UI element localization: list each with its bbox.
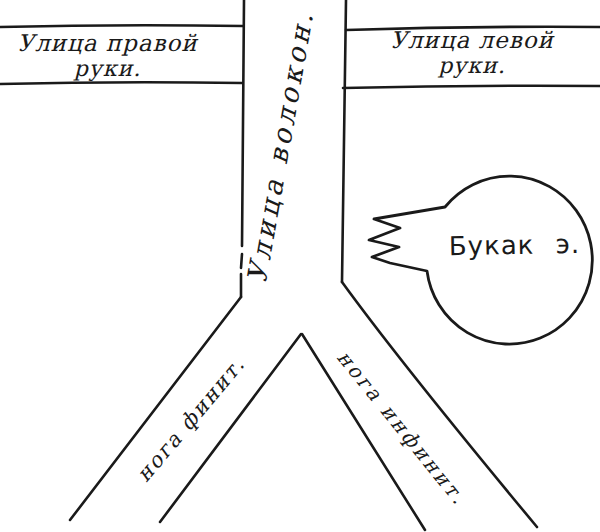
street-label-top-right-line1: Улица левой [372,28,572,52]
street-line-vertical-left [241,0,244,297]
street-label-top-left: Улица правой руки. [5,31,210,80]
street-label-top-right-line2: руки. [372,54,572,77]
street-label-top-right: Улица левой руки. [372,28,572,77]
speech-bubble-text: Букак э. [447,229,583,261]
hand-drawn-street-map: Улица правой руки. Улица левой руки. Ули… [0,0,600,532]
street-line-top-left-upper [0,25,243,27]
street-line-top-left-lower [0,82,242,84]
street-line-vertical-right [342,0,346,282]
street-label-top-left-line1: Улица правой [5,31,210,55]
street-line-top-right-lower [343,86,600,88]
street-label-top-left-line2: руки. [5,57,210,80]
